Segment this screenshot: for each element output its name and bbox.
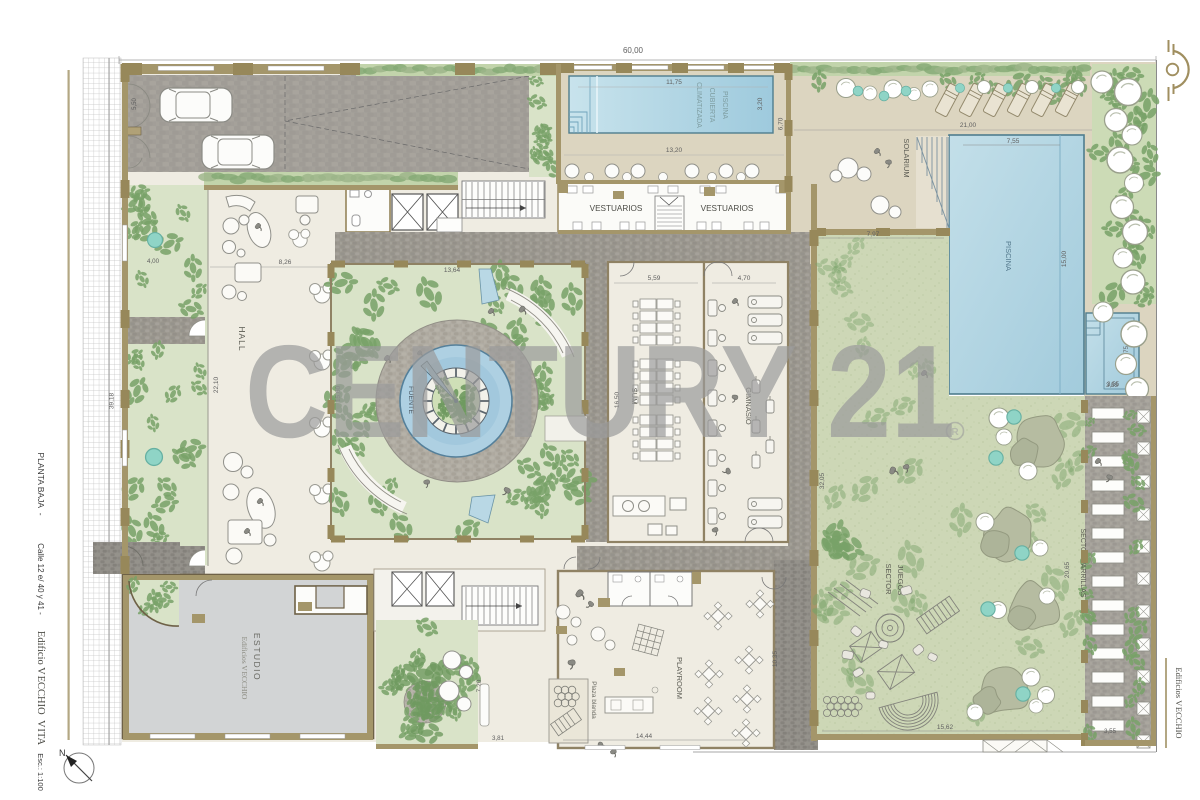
svg-text:CENTURY 21: CENTURY 21 (245, 318, 955, 465)
svg-text:SECTOR: SECTOR (884, 563, 893, 595)
svg-text:Esc.: 1:100: Esc.: 1:100 (36, 753, 45, 791)
svg-text:13,20: 13,20 (666, 147, 683, 154)
svg-text:8,26: 8,26 (279, 259, 292, 266)
svg-text:7,97: 7,97 (867, 231, 880, 238)
svg-text:Edificios V ECCHIO: Edificios V ECCHIO (1174, 667, 1184, 738)
svg-text:R: R (951, 427, 959, 438)
svg-text:11,75: 11,75 (666, 79, 682, 86)
svg-text:PISCINA: PISCINA (721, 91, 728, 119)
svg-text:ESTUDIO: ESTUDIO (252, 633, 262, 681)
svg-text:15,62: 15,62 (937, 724, 954, 731)
svg-text:10,35: 10,35 (772, 650, 779, 667)
svg-text:Edificios V ECCHIO: Edificios V ECCHIO (240, 637, 249, 700)
svg-text:14,44: 14,44 (636, 733, 653, 740)
svg-text:3,55: 3,55 (1107, 381, 1120, 388)
svg-text:SOLARIUM: SOLARIUM (902, 138, 911, 177)
svg-text:PLAYROOM: PLAYROOM (675, 657, 684, 699)
svg-text:N: N (59, 748, 66, 758)
svg-text:Calle 12 e/ 40 y 41 -: Calle 12 e/ 40 y 41 - (36, 543, 45, 615)
svg-text:PISCINA: PISCINA (1004, 241, 1013, 271)
svg-text:4,00: 4,00 (147, 258, 160, 265)
svg-text:3,20: 3,20 (757, 97, 764, 110)
svg-text:CLIMATIZADA: CLIMATIZADA (695, 82, 702, 128)
svg-text:15,00: 15,00 (1061, 250, 1068, 267)
svg-text:21,00: 21,00 (960, 122, 977, 129)
svg-text:CUBIERTA: CUBIERTA (708, 88, 715, 123)
svg-text:22,10: 22,10 (213, 376, 220, 393)
svg-text:3,55: 3,55 (1104, 728, 1117, 735)
svg-text:PLANTA BAJA -: PLANTA BAJA - (36, 452, 46, 515)
svg-text:VESTUARIOS: VESTUARIOS (590, 204, 643, 213)
svg-text:20,65: 20,65 (1064, 561, 1071, 578)
svg-text:39,18: 39,18 (109, 392, 116, 409)
svg-text:13,64: 13,64 (444, 267, 461, 274)
svg-text:Edificio V ECCHIO V ITA: Edificio V ECCHIO V ITA (35, 631, 46, 746)
svg-text:VESTUARIOS: VESTUARIOS (701, 204, 754, 213)
svg-text:6,70: 6,70 (778, 117, 785, 130)
svg-text:SECTOR PARRILLAS: SECTOR PARRILLAS (1079, 529, 1086, 598)
svg-text:5,59: 5,59 (648, 275, 661, 282)
svg-text:5,50: 5,50 (132, 98, 138, 110)
svg-text:60,00: 60,00 (623, 46, 644, 55)
svg-text:7,55: 7,55 (1007, 138, 1020, 145)
svg-text:Plaza blanda: Plaza blanda (590, 681, 597, 719)
svg-text:3,81: 3,81 (492, 735, 505, 742)
svg-text:32,05: 32,05 (819, 472, 826, 489)
svg-text:4,70: 4,70 (738, 275, 751, 282)
